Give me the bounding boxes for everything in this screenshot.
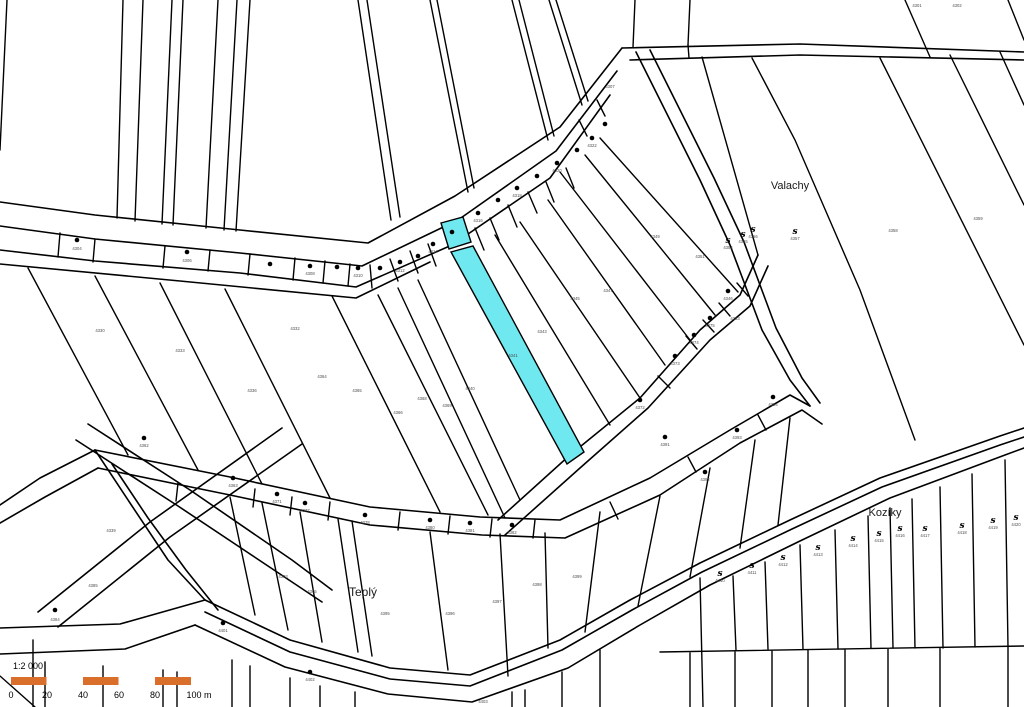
parcel-number: 4310 <box>353 273 363 278</box>
parcel-number: 4414 <box>848 543 858 548</box>
parcel-number: 4384 <box>50 617 60 622</box>
parcel-number: 4322 <box>587 143 597 148</box>
point-symbol <box>476 211 481 216</box>
parcel-number: 4362 <box>139 443 149 448</box>
parcel-number: 4354 <box>723 245 733 250</box>
point-symbol <box>771 395 776 400</box>
parcel-number: 4343 <box>537 329 547 334</box>
parcel-number: 4380 <box>425 525 435 530</box>
point-symbol <box>638 398 643 403</box>
point-symbol <box>335 265 340 270</box>
point-symbol <box>268 262 273 267</box>
point-symbol <box>726 289 731 294</box>
point-symbol <box>428 518 433 523</box>
parcel-number: 4399 <box>572 574 582 579</box>
parcel-number: 4332 <box>290 326 300 331</box>
parcel-number: 4312 <box>395 268 405 273</box>
parcel-number: 4356 <box>748 234 758 239</box>
point-symbol <box>416 254 421 259</box>
parcel-number: 4301 <box>912 3 922 8</box>
parcel-number: 4413 <box>813 552 823 557</box>
parcel-number: 4392 <box>700 477 710 482</box>
point-symbol <box>363 513 368 518</box>
scale-tick-label: 40 <box>78 690 88 700</box>
parcel-number: 4391 <box>660 442 670 447</box>
point-symbol <box>555 161 560 166</box>
parcel-number: 4420 <box>1011 522 1021 527</box>
parcel-number: 4398 <box>532 582 542 587</box>
parcel-number: 4374 <box>689 340 699 345</box>
parcel-number: 4330 <box>95 328 105 333</box>
parcel-number: 4419 <box>988 525 998 530</box>
parcel-number: 4396 <box>445 611 455 616</box>
scale-bar-segment <box>155 677 191 685</box>
scale-tick-label: 0 <box>8 690 13 700</box>
parcel-number: 4369 <box>442 403 452 408</box>
map-viewport[interactable]: sssssssssssssss 430443064308431043124314… <box>0 0 1024 707</box>
parcel-number: 4345 <box>570 296 580 301</box>
point-symbol <box>308 670 313 675</box>
parcel-number: 4375 <box>705 323 715 328</box>
scale-tick-label: 100 m <box>186 690 211 700</box>
region-label-kozíky: Kozíky <box>868 507 902 519</box>
parcel-number: 4341 <box>508 353 518 358</box>
parcel-number: 4368 <box>417 396 427 401</box>
point-symbol <box>231 476 236 481</box>
parcel-number: 4364 <box>317 374 327 379</box>
parcel-number: 4302 <box>952 3 962 8</box>
parcel-number: 4318 <box>512 193 522 198</box>
point-symbol <box>496 198 501 203</box>
point-symbol <box>575 148 580 153</box>
point-symbol <box>663 435 668 440</box>
point-symbol <box>603 122 608 127</box>
point-symbol <box>590 136 595 141</box>
point-symbol <box>75 238 80 243</box>
parcel-number: 4346 <box>723 296 733 301</box>
parcel-number: 4340 <box>465 386 475 391</box>
parcel-number: 4358 <box>888 228 898 233</box>
point-symbol <box>450 230 455 235</box>
parcel-number: 4349 <box>650 234 660 239</box>
point-symbol <box>308 264 313 269</box>
parcel-number: 4395 <box>380 611 390 616</box>
parcel-number: 4410 <box>715 578 725 583</box>
point-symbol <box>378 266 383 271</box>
point-symbol <box>515 186 520 191</box>
parcel-number: 4355 <box>738 239 748 244</box>
parcel-number: 4393 <box>732 435 742 440</box>
region-label-valachy: Valachy <box>771 180 810 192</box>
parcel-number: 4416 <box>895 533 905 538</box>
point-symbol <box>303 501 308 506</box>
point-symbol <box>703 470 708 475</box>
parcel-number: 4412 <box>778 562 788 567</box>
parcel-number: 4347 <box>603 288 613 293</box>
point-symbol <box>510 523 515 528</box>
point-symbol <box>275 492 280 497</box>
parcel-number: 4320 <box>552 168 562 173</box>
parcel-number: 4373 <box>670 361 680 366</box>
point-symbol <box>535 174 540 179</box>
parcel-number: 4365 <box>352 388 362 393</box>
parcel-number: 4401 <box>218 628 228 633</box>
scale-bar-segment <box>11 677 47 685</box>
point-symbol <box>708 316 713 321</box>
scale-bar-segment <box>47 677 83 685</box>
parcel-number: 4314 <box>428 249 438 254</box>
parcel-number: 4339 <box>106 528 116 533</box>
parcel-number: 4381 <box>465 528 475 533</box>
parcel-number: 4394 <box>768 402 778 407</box>
parcel-number: 4382 <box>507 530 517 535</box>
parcel-number: 4385 <box>88 583 98 588</box>
parcel-number: 4359 <box>973 216 983 221</box>
parcel-number: 4306 <box>182 258 192 263</box>
point-symbol <box>735 428 740 433</box>
point-symbol <box>468 521 473 526</box>
scale-bar-segment <box>83 677 119 685</box>
parcel-number: 4351 <box>695 254 705 259</box>
parcel-number: 4363 <box>228 483 238 488</box>
parcel-number: 4336 <box>247 388 257 393</box>
parcel-number: 4307 <box>605 84 615 89</box>
point-symbol <box>431 242 436 247</box>
scale-tick-label: 80 <box>150 690 160 700</box>
point-symbol <box>398 260 403 265</box>
parcel-number: 4397 <box>492 599 502 604</box>
parcel-number: 4366 <box>393 410 403 415</box>
parcel-number: 4377 <box>300 508 310 513</box>
scale-bar-segment <box>119 677 155 685</box>
parcel-number: 4403 <box>478 699 488 704</box>
parcel-number: 4304 <box>72 246 82 251</box>
point-symbol <box>692 333 697 338</box>
scale-tick-label: 20 <box>42 690 52 700</box>
parcel-number: 4353 <box>730 316 740 321</box>
point-symbol <box>185 250 190 255</box>
parcel-number: 4418 <box>957 530 967 535</box>
parcel-number: 4333 <box>175 348 185 353</box>
parcel-number: 4316 <box>473 218 483 223</box>
scale-ratio-label: 1:2 000 <box>13 661 43 671</box>
point-symbol <box>356 266 361 271</box>
region-label-teplý: Teplý <box>349 585 377 599</box>
parcel-number: 4371 <box>272 499 282 504</box>
parcel-number: 4402 <box>305 677 315 682</box>
point-symbol <box>142 436 147 441</box>
parcel-number: 4415 <box>874 538 884 543</box>
point-symbol <box>673 354 678 359</box>
parcel-number: 4417 <box>920 533 930 538</box>
parcel-number: 4357 <box>790 236 800 241</box>
parcel-number: 4411 <box>747 570 757 575</box>
parcel-number: 4372 <box>635 405 645 410</box>
point-symbol <box>53 608 58 613</box>
parcel-number: 4378 <box>360 520 370 525</box>
point-symbol <box>221 621 226 626</box>
parcel-number: 4303 <box>278 574 288 579</box>
parcel-number: 4308 <box>305 271 315 276</box>
scale-tick-label: 60 <box>114 690 124 700</box>
parcel-number: 4305 <box>307 589 317 594</box>
